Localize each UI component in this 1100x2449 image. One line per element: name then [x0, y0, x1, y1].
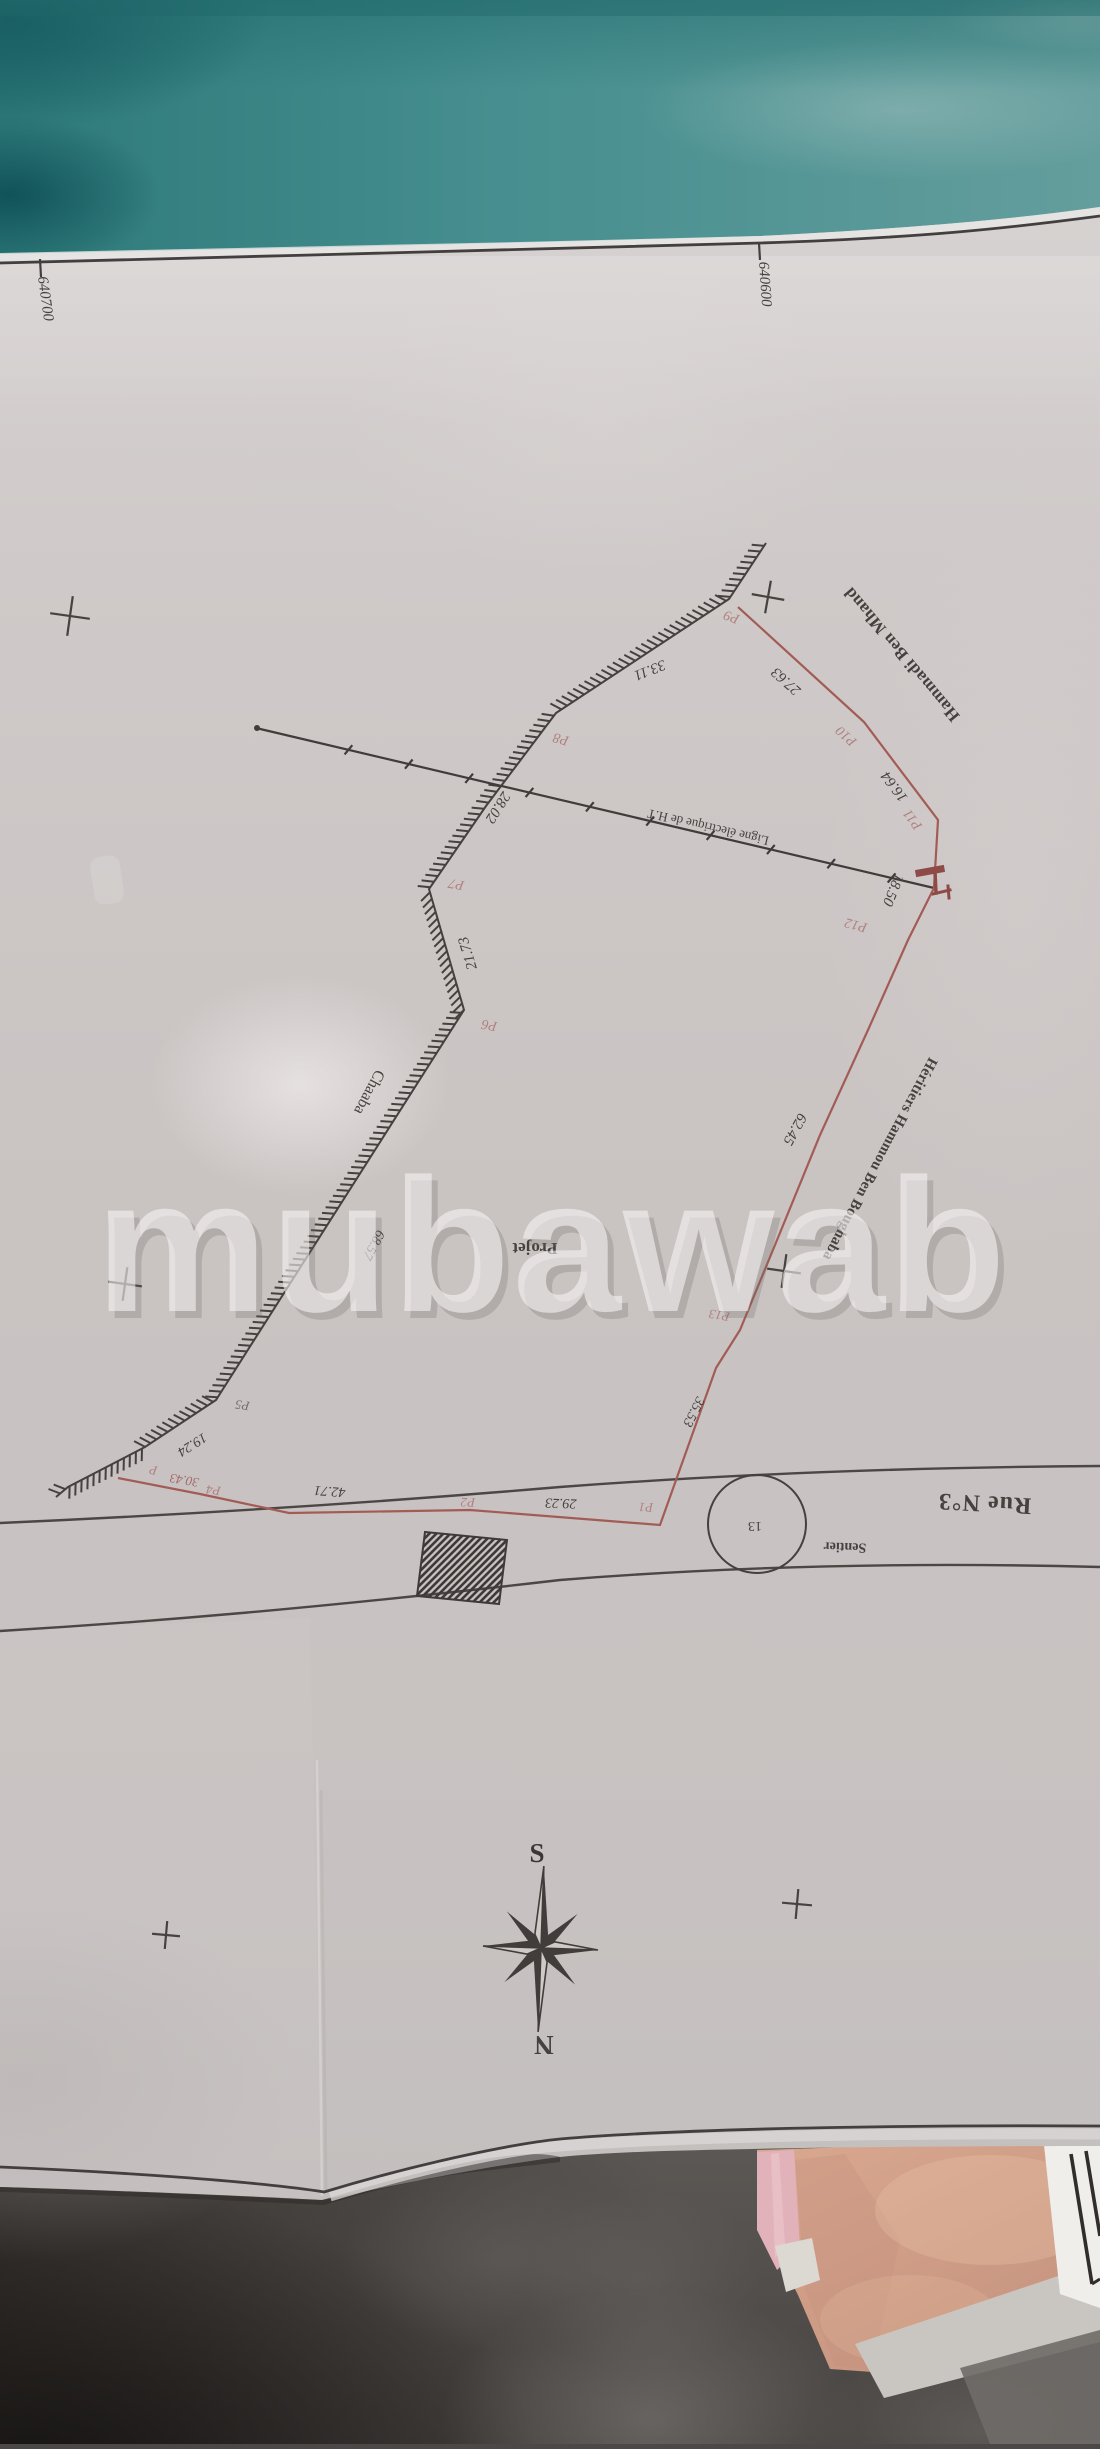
svg-text:640600: 640600 — [755, 261, 774, 308]
svg-text:P2: P2 — [460, 1495, 476, 1511]
svg-text:P5: P5 — [234, 1397, 252, 1414]
svg-text:P4: P4 — [205, 1482, 223, 1499]
svg-text:Rue N°3: Rue N°3 — [937, 1488, 1031, 1519]
svg-text:13: 13 — [748, 1518, 762, 1533]
svg-text:N: N — [534, 2030, 554, 2060]
svg-text:Sentier: Sentier — [823, 1538, 866, 1554]
svg-text:S: S — [529, 1838, 544, 1868]
svg-text:29.23: 29.23 — [545, 1494, 577, 1510]
svg-text:P1: P1 — [638, 1500, 654, 1516]
svg-text:mubawab: mubawab — [95, 1140, 1008, 1352]
svg-text:42.71: 42.71 — [314, 1482, 346, 1499]
svg-text:P6: P6 — [480, 1016, 499, 1034]
